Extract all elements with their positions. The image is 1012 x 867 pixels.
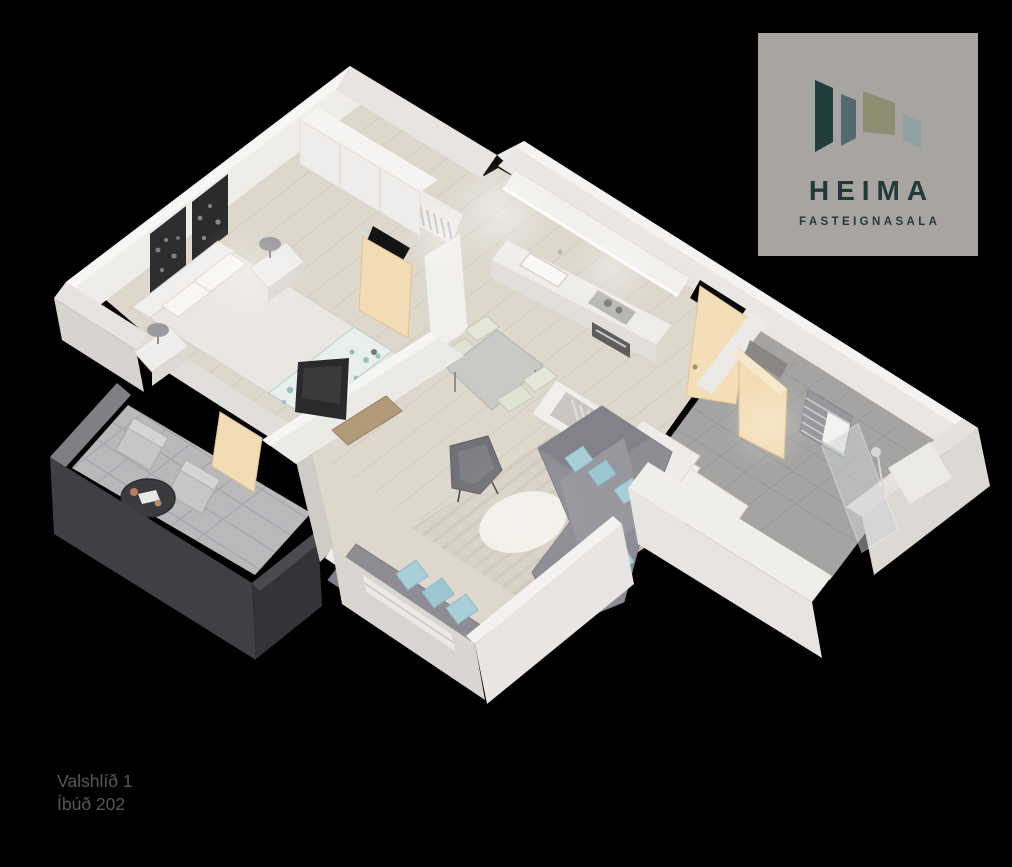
property-caption: Valshlíð 1 Íbúð 202 <box>57 770 133 816</box>
agency-logo-card: HEIMA FASTEIGNASALA <box>758 33 978 256</box>
copper-cup <box>130 488 138 496</box>
caption-apartment: Íbúð 202 <box>57 793 133 816</box>
shower-head <box>871 447 881 457</box>
logo-panel-dark-teal <box>815 80 833 152</box>
floorplan-page: HEIMA FASTEIGNASALA Valshlíð 1 Íbúð 202 <box>0 0 1012 867</box>
logo-panel-olive <box>863 91 895 135</box>
door-handle <box>693 365 698 370</box>
tv-screen <box>302 366 342 404</box>
logo-panel-light-gray <box>903 114 921 148</box>
logo-brand-text: HEIMA <box>758 175 978 207</box>
table-lamp <box>147 323 169 337</box>
faucet <box>558 250 563 255</box>
heima-logo-mark <box>758 33 978 173</box>
logo-tagline-text: FASTEIGNASALA <box>758 216 978 228</box>
copper-cup <box>155 500 162 507</box>
logo-panel-blue-gray <box>841 94 856 146</box>
caption-street: Valshlíð 1 <box>57 770 133 793</box>
decor-vase <box>371 349 377 355</box>
